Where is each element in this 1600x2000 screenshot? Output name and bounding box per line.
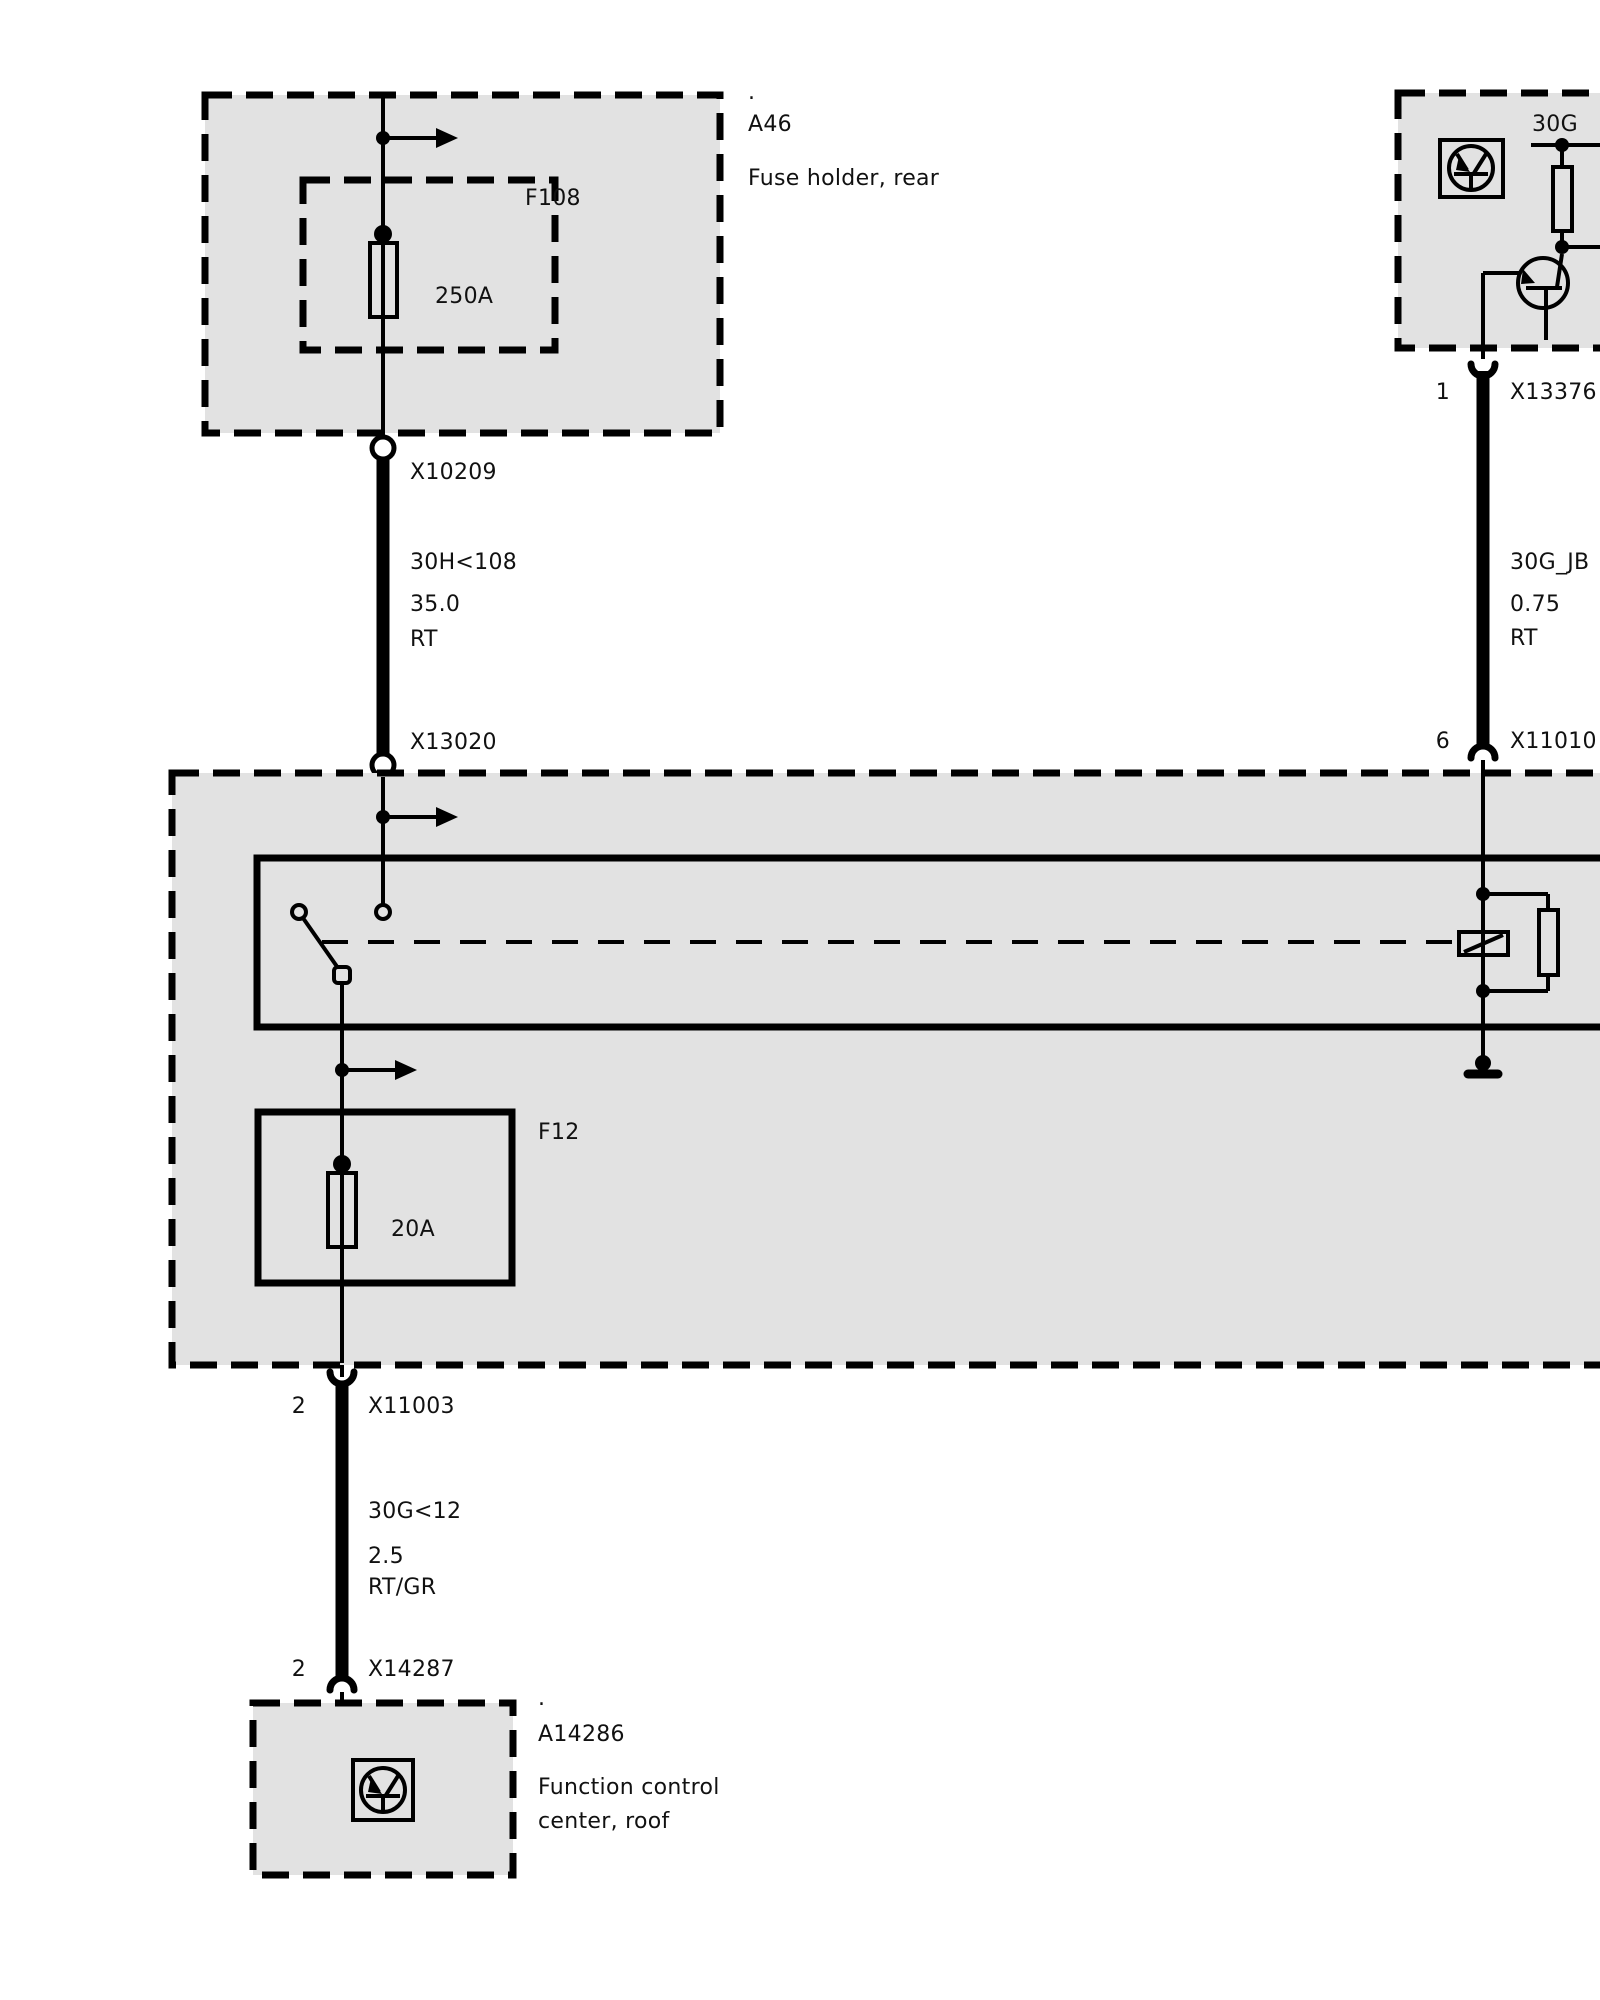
coil-parallel-resistor-symbol <box>1539 910 1558 975</box>
f12-label: F12 <box>538 1120 580 1146</box>
connector-label-x13376: X13376 <box>1510 380 1597 406</box>
wire-color-30h108: RT <box>410 627 438 653</box>
wire-color-30g12: RT/GR <box>368 1575 436 1601</box>
f108-fuse-cap <box>374 225 392 243</box>
a14286-desc-line1: Function control <box>538 1775 720 1801</box>
wiring-diagram-page: . A46 Fuse holder, rear F108 250A X10209… <box>0 0 1600 2000</box>
wiring-diagram-graphics <box>0 0 1600 2000</box>
a14286-ref-label: A14286 <box>538 1722 625 1748</box>
a46-ref-label: A46 <box>748 112 792 138</box>
connector-x14287-symbol <box>330 1678 354 1690</box>
a14286-desc-line2: center, roof <box>538 1809 670 1835</box>
f108-label: F108 <box>525 186 581 212</box>
relay-contact-movable <box>334 967 350 983</box>
a46-fuse-holder-box <box>205 95 720 437</box>
pin-number-x13376: 1 <box>1424 380 1450 406</box>
connector-x11010-symbol <box>1471 746 1495 758</box>
wire-circuit-30g12: 30G<12 <box>368 1499 461 1525</box>
a46-ref-dot: . <box>748 80 755 106</box>
pin-number-x11003: 2 <box>280 1394 306 1420</box>
wire-gauge-30gjb: 0.75 <box>1510 592 1560 618</box>
connector-x10209-symbol <box>372 437 394 459</box>
connector-label-x14287: X14287 <box>368 1657 455 1683</box>
a46-desc-label: Fuse holder, rear <box>748 166 939 192</box>
junction-box <box>172 773 1600 1365</box>
connector-label-x10209: X10209 <box>410 460 497 486</box>
coil-junction-dot-bottom <box>1476 984 1490 998</box>
wire-circuit-30gjb: 30G_JB <box>1510 550 1589 576</box>
a14286-roof-module-box <box>253 1703 513 1875</box>
f108-rating-label: 250A <box>435 284 493 310</box>
pin-number-x14287: 2 <box>280 1657 306 1683</box>
a14286-ref-dot: . <box>538 1686 545 1712</box>
relay-contact-fixed-left <box>292 905 306 919</box>
a14286-box-outline <box>253 1703 513 1875</box>
relay-contact-fixed-right <box>376 905 390 919</box>
wire-gauge-30h108: 35.0 <box>410 592 460 618</box>
connector-label-x11003: X11003 <box>368 1394 455 1420</box>
pin-number-x11010: 6 <box>1424 729 1450 755</box>
wire-gauge-30g12: 2.5 <box>368 1544 404 1570</box>
connector-label-x13020: X13020 <box>410 730 497 756</box>
wire-circuit-30h108: 30H<108 <box>410 550 517 576</box>
pm-resistor-symbol <box>1553 167 1572 231</box>
f12-fuse-cap <box>333 1155 351 1173</box>
wire-color-30gjb: RT <box>1510 626 1538 652</box>
ground-dot <box>1475 1055 1491 1071</box>
bus-30g-label: 30G <box>1532 112 1578 138</box>
f12-rating-label: 20A <box>391 1217 435 1243</box>
connector-label-x11010: X11010 <box>1510 729 1597 755</box>
a46-box-outline <box>205 95 720 433</box>
